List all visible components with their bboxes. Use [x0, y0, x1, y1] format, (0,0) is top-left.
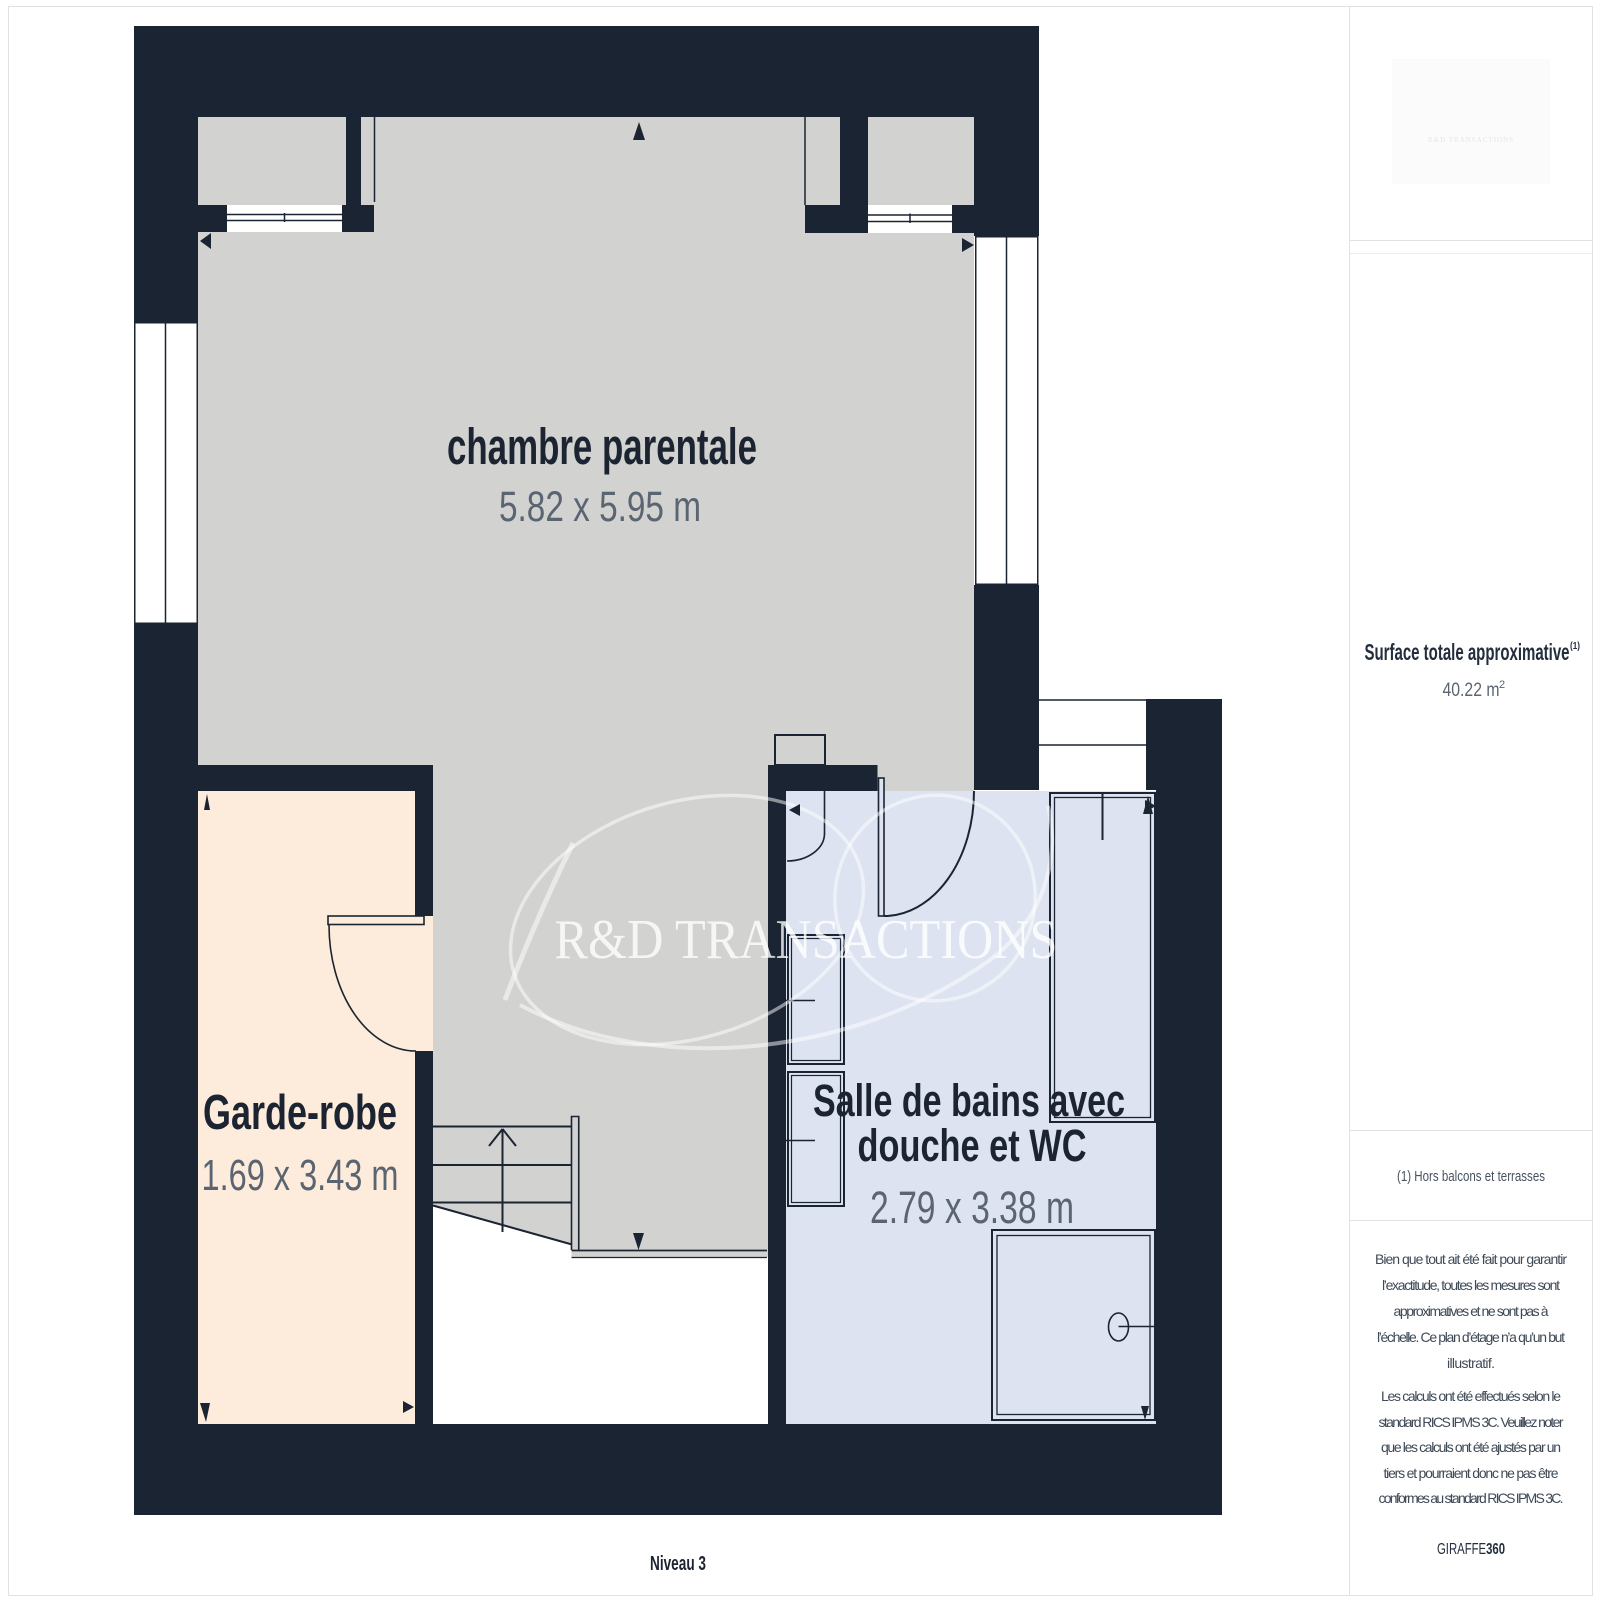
svg-text:illustratif.: illustratif. — [1447, 1355, 1495, 1371]
svg-text:Salle de bains avec: Salle de bains avec — [813, 1075, 1125, 1126]
svg-text:Surface totale approximative: Surface totale approximative — [1365, 639, 1570, 665]
svg-text:Bien que tout ait été fait pou: Bien que tout ait été fait pour garantir — [1375, 1251, 1567, 1267]
svg-text:2.79 x 3.38 m: 2.79 x 3.38 m — [870, 1182, 1074, 1233]
svg-text:Niveau 3: Niveau 3 — [650, 1553, 706, 1575]
svg-text:tiers et pourraient donc ne pa: tiers et pourraient donc ne pas être — [1384, 1465, 1559, 1481]
svg-text:chambre parentale: chambre parentale — [447, 418, 757, 475]
svg-text:(1): (1) — [1570, 641, 1580, 652]
svg-text:(1) Hors balcons et terrasses: (1) Hors balcons et terrasses — [1397, 1169, 1545, 1185]
svg-text:approximatives et ne sont pas: approximatives et ne sont pas à — [1394, 1303, 1549, 1319]
svg-text:40.22 m: 40.22 m — [1443, 680, 1500, 701]
svg-text:l’exactitude, toutes les mesur: l’exactitude, toutes les mesures sont — [1382, 1277, 1560, 1293]
svg-text:2: 2 — [1499, 679, 1505, 691]
svg-text:douche et WC: douche et WC — [858, 1120, 1087, 1171]
svg-text:5.82 x 5.95 m: 5.82 x 5.95 m — [499, 483, 701, 531]
svg-text:l’échelle. Ce plan d’étage n’a: l’échelle. Ce plan d’étage n’a qu’un but — [1377, 1329, 1565, 1345]
svg-text:R&D TRANSACTIONS: R&D TRANSACTIONS — [1428, 136, 1514, 144]
svg-text:que les calculs ont été ajusté: que les calculs ont été ajustés par un — [1381, 1439, 1561, 1455]
svg-text:1.69 x 3.43 m: 1.69 x 3.43 m — [202, 1151, 399, 1200]
svg-text:Les calculs ont été effectués: Les calculs ont été effectués selon le — [1381, 1388, 1561, 1404]
svg-text:GIRAFFE360: GIRAFFE360 — [1437, 1541, 1505, 1558]
svg-text:standard RICS IPMS 3C. Veuille: standard RICS IPMS 3C. Veuillez noter — [1379, 1414, 1564, 1430]
svg-text:R&D TRANSACTIONS: R&D TRANSACTIONS — [555, 909, 1058, 971]
svg-text:conformes au standard RICS IPM: conformes au standard RICS IPMS 3C. — [1379, 1490, 1564, 1506]
svg-text:Garde-robe: Garde-robe — [203, 1086, 397, 1140]
